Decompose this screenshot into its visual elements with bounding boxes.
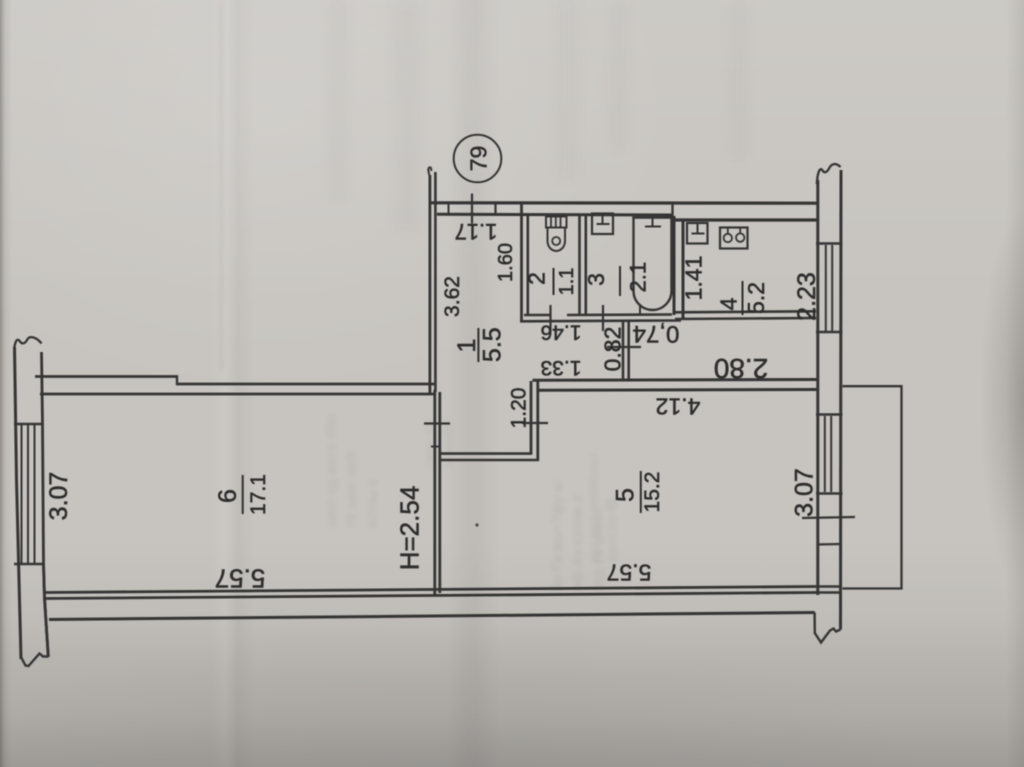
svg-text:5.5: 5.5 (478, 327, 506, 362)
svg-text:0,74: 0,74 (633, 320, 680, 347)
svg-text:H=2.54: H=2.54 (394, 486, 424, 571)
svg-text:1.33: 1.33 (541, 356, 582, 379)
svg-text:5.57: 5.57 (607, 560, 652, 586)
svg-text:79: 79 (465, 146, 491, 172)
svg-text:15.2: 15.2 (641, 472, 664, 513)
svg-text:5.57: 5.57 (215, 564, 266, 594)
svg-text:1.41: 1.41 (680, 256, 706, 301)
svg-text:1: 1 (453, 339, 481, 353)
svg-text:3: 3 (583, 273, 609, 286)
svg-text:5: 5 (612, 488, 640, 502)
svg-text:1.20: 1.20 (508, 388, 531, 429)
svg-text:1.46: 1.46 (541, 320, 582, 343)
svg-text:4.12: 4.12 (656, 394, 701, 420)
svg-text:3.07: 3.07 (791, 468, 819, 517)
svg-text:3.62: 3.62 (441, 276, 464, 317)
svg-text:17.1: 17.1 (247, 474, 270, 515)
svg-text:0.82: 0.82 (599, 327, 625, 372)
svg-text:6: 6 (214, 489, 242, 503)
svg-text:1.60: 1.60 (495, 243, 517, 282)
svg-text:1.17: 1.17 (455, 219, 498, 244)
svg-text:2.80: 2.80 (714, 353, 769, 384)
svg-text:2.23: 2.23 (793, 272, 821, 321)
svg-text:1.1: 1.1 (556, 268, 578, 296)
svg-text:2: 2 (523, 272, 549, 285)
svg-text:5.2: 5.2 (743, 282, 769, 314)
svg-text:2.1: 2.1 (625, 262, 650, 293)
svg-text:3.07: 3.07 (45, 472, 73, 521)
svg-text:4: 4 (715, 297, 741, 310)
